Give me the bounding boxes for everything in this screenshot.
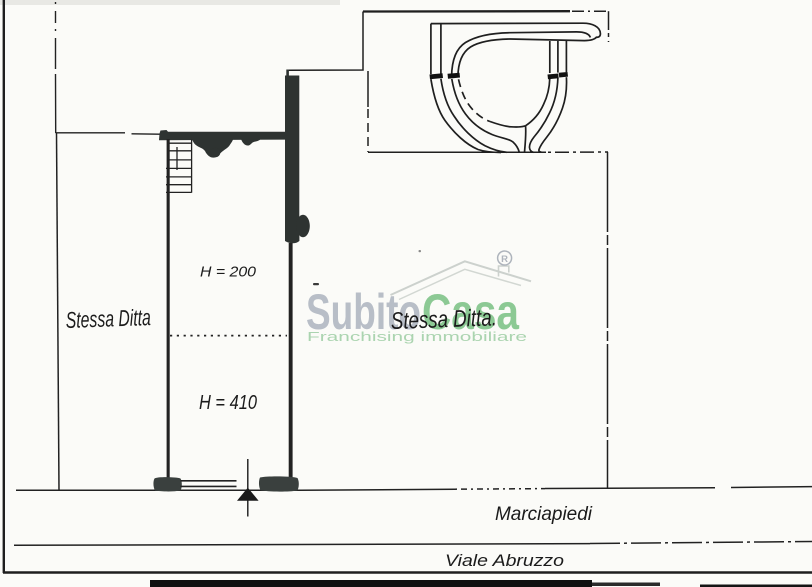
svg-text:Marciapiedi: Marciapiedi	[495, 504, 593, 525]
svg-text:R: R	[501, 254, 508, 265]
svg-text:Stessa Ditta: Stessa Ditta	[65, 304, 151, 333]
svg-text:Stessa Ditta.: Stessa Ditta.	[390, 304, 497, 335]
svg-text:H = 200: H = 200	[200, 264, 257, 281]
svg-text:H = 410: H = 410	[199, 392, 257, 414]
svg-text:Viale Abruzzo: Viale Abruzzo	[445, 552, 564, 570]
